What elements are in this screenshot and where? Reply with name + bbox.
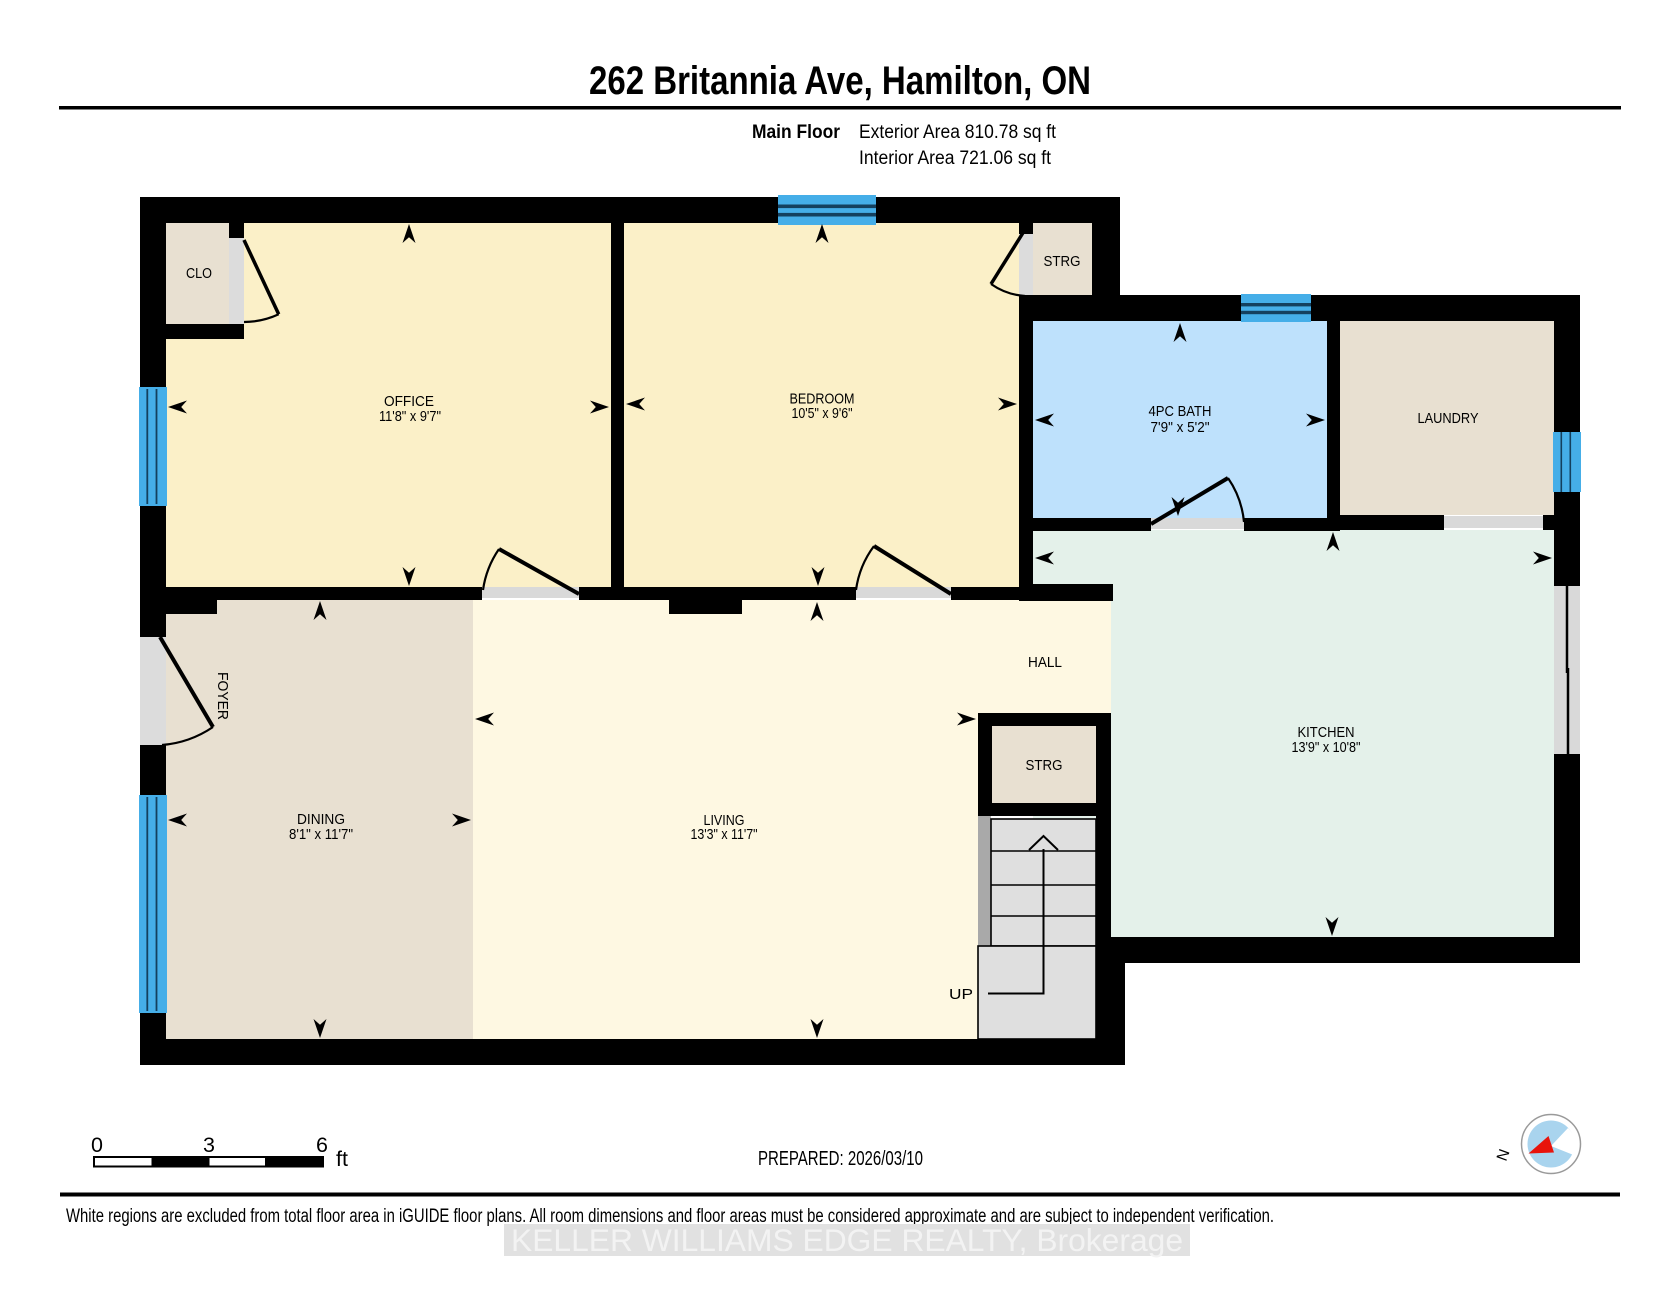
svg-text:Main Floor: Main Floor [752, 122, 841, 143]
svg-text:UP: UP [949, 987, 973, 1003]
svg-text:LAUNDRY: LAUNDRY [1418, 411, 1479, 427]
svg-text:PREPARED: 2026/03/10: PREPARED: 2026/03/10 [758, 1148, 923, 1170]
svg-text:DINING: DINING [297, 812, 345, 828]
svg-text:HALL: HALL [1028, 655, 1062, 671]
svg-text:OFFICE: OFFICE [384, 394, 434, 410]
svg-text:Interior Area 721.06 sq ft: Interior Area 721.06 sq ft [859, 148, 1052, 169]
svg-text:Exterior Area 810.78 sq ft: Exterior Area 810.78 sq ft [859, 122, 1057, 143]
svg-text:3: 3 [203, 1133, 215, 1157]
svg-text:13'9" x 10'8": 13'9" x 10'8" [1292, 740, 1361, 756]
svg-text:ft: ft [336, 1147, 348, 1171]
svg-text:262 Britannia Ave, Hamilton, O: 262 Britannia Ave, Hamilton, ON [589, 59, 1091, 103]
svg-text:7'9" x 5'2": 7'9" x 5'2" [1151, 420, 1210, 436]
svg-text:11'8" x 9'7": 11'8" x 9'7" [379, 409, 441, 425]
svg-text:FOYER: FOYER [214, 672, 230, 720]
svg-text:STRG: STRG [1044, 254, 1081, 270]
svg-text:10'5" x 9'6": 10'5" x 9'6" [792, 406, 853, 422]
svg-text:CLO: CLO [186, 266, 212, 282]
svg-text:4PC BATH: 4PC BATH [1149, 404, 1212, 420]
svg-text:KITCHEN: KITCHEN [1298, 725, 1355, 741]
svg-text:STRG: STRG [1026, 758, 1063, 774]
svg-text:8'1" x 11'7": 8'1" x 11'7" [289, 827, 353, 843]
svg-text:KELLER WILLIAMS EDGE REALTY, B: KELLER WILLIAMS EDGE REALTY, Brokerage [511, 1222, 1183, 1258]
svg-text:0: 0 [91, 1133, 103, 1157]
svg-text:13'3" x 11'7": 13'3" x 11'7" [691, 827, 758, 843]
svg-text:6: 6 [316, 1133, 328, 1157]
